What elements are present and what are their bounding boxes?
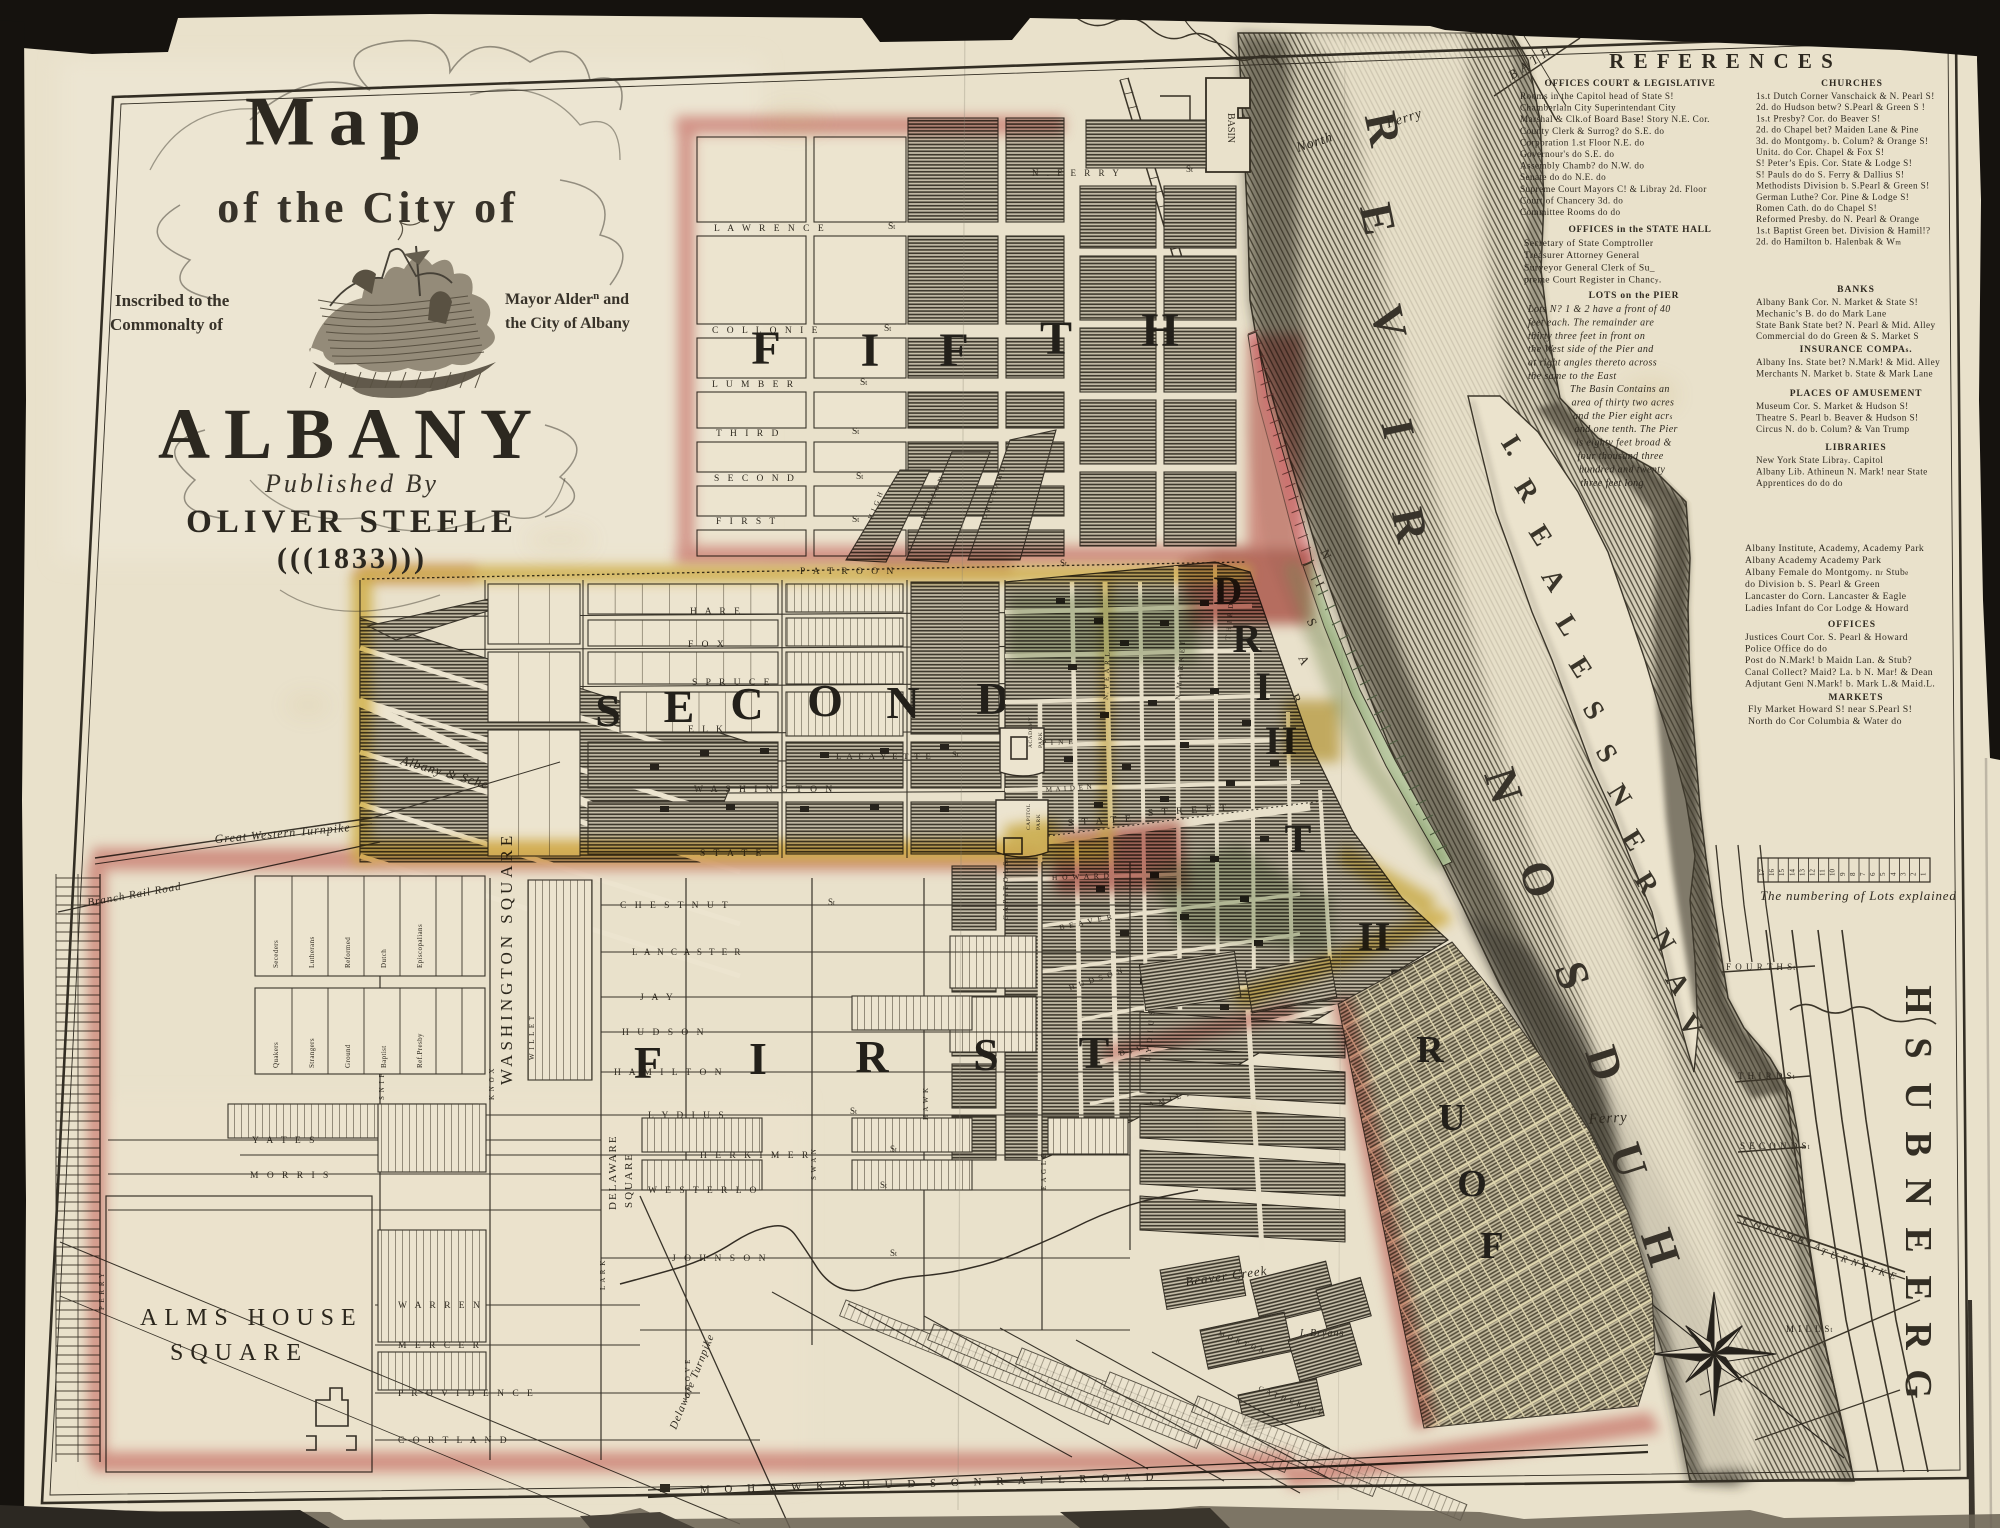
svg-text:Reformed: Reformed	[344, 937, 352, 968]
svg-text:Albany Ins. State bet? N.Mark: Albany Ins. State bet? N.Mark! & Mid. Al…	[1756, 357, 1940, 367]
svg-text:H A M I L T O N: H A M I L T O N	[614, 1068, 725, 1078]
svg-text:at right angles thereto across: at right angles thereto across	[1528, 358, 1657, 369]
svg-text:BASIN: BASIN	[1225, 113, 1236, 143]
svg-text:K N O X: K N O X	[488, 1068, 496, 1100]
svg-text:2: 2	[1910, 872, 1918, 876]
svg-text:11: 11	[1819, 869, 1827, 876]
svg-text:Albany Institute, Academy, Aca: Albany Institute, Academy, Academy Park	[1745, 543, 1924, 554]
svg-text:Romen Cath. do do: Romen Cath. do do Chapel S!	[1756, 203, 1877, 213]
svg-text:N: N	[1897, 1178, 1939, 1205]
svg-text:3: 3	[1899, 872, 1907, 876]
svg-text:L A W R E N C E: L A W R E N C E	[714, 224, 827, 234]
svg-text:St: St	[860, 378, 867, 388]
svg-text:E A G L E: E A G L E	[1040, 1152, 1048, 1190]
svg-text:ACADEMY: ACADEMY	[1028, 717, 1034, 748]
svg-text:Commonalty of: Commonalty of	[110, 315, 223, 334]
svg-text:area of thirty two acres: area of thirty two acres	[1572, 397, 1675, 408]
svg-text:thirty three feet in front on: thirty three feet in front on	[1528, 331, 1645, 342]
svg-text:Museum Cor. S. Market & Hudson: Museum Cor. S. Market & Hudson S!	[1756, 401, 1909, 411]
svg-text:the West side of the Pier and: the West side of the Pier and	[1528, 344, 1654, 355]
svg-text:E: E	[664, 681, 695, 732]
svg-text:Canal Collect? Maid? La. b N.: Canal Collect? Maid? La. b N. Mar! & Dea…	[1745, 667, 1933, 678]
svg-text:of the City of: of the City of	[217, 183, 519, 232]
svg-text:St: St	[1186, 164, 1193, 174]
svg-text:F O X: F O X	[688, 640, 727, 650]
svg-text:St: St	[828, 897, 835, 907]
svg-text:1s.t Presby? Cor.: 1s.t Presby? Cor. do Beaver S!	[1756, 113, 1881, 123]
svg-text:4: 4	[1889, 872, 1897, 876]
svg-text:MARKETS: MARKETS	[1828, 693, 1883, 703]
svg-text:2d. do Chapel bet? Maiden La: 2d. do Chapel bet? Maiden Lane & Pine	[1756, 125, 1919, 135]
svg-text:I: I	[1255, 664, 1271, 709]
svg-text:H A R E: H A R E	[690, 607, 743, 617]
svg-text:U: U	[1897, 1082, 1939, 1109]
svg-text:W I L L E T: W I L L E T	[528, 1015, 536, 1060]
svg-text:Surveyor General Clerk of Su_: Surveyor General Clerk of Su_	[1524, 262, 1655, 273]
svg-text:Commercial do do Green & S.: Commercial do do Green & S. Market S	[1756, 331, 1919, 341]
svg-text:M E R C E R: M E R C E R	[398, 1341, 482, 1351]
svg-text:OLIVER STEELE: OLIVER STEELE	[186, 504, 518, 540]
svg-text:S: S	[595, 685, 621, 736]
svg-text:12: 12	[1809, 869, 1817, 877]
svg-text:Ref.Presby: Ref.Presby	[416, 1033, 424, 1068]
svg-text:Marshal & Clk.of Board Base! S: Marshal & Clk.of Board Base! Story N.E. …	[1520, 114, 1710, 124]
svg-text:F: F	[939, 324, 968, 377]
svg-text:F O U R T H St: F O U R T H St	[1726, 962, 1796, 972]
svg-text:R: R	[1416, 1029, 1444, 1071]
svg-text:St: St	[852, 427, 859, 437]
svg-text:C: C	[730, 678, 763, 729]
svg-text:6: 6	[1869, 872, 1877, 876]
svg-text:N: N	[886, 677, 919, 728]
svg-text:Inscribed to the: Inscribed to the	[115, 291, 230, 310]
svg-text:O: O	[807, 675, 843, 726]
svg-text:St: St	[890, 1144, 897, 1154]
svg-text:The Basin Contains an: The Basin Contains an	[1570, 384, 1670, 395]
svg-text:PLACES OF AMUSEMENT: PLACES OF AMUSEMENT	[1790, 389, 1923, 399]
svg-text:SQUARE: SQUARE	[623, 1152, 635, 1208]
svg-text:Police Office do: Police Office do do	[1745, 644, 1827, 655]
svg-text:1s.t Baptist Green bet. Divisi: 1s.t Baptist Green bet. Division & Hamil…	[1756, 225, 1931, 235]
svg-text:Rooms in the Capitol head of S: Rooms in the Capitol head of State S!	[1520, 91, 1674, 101]
svg-text:T H I R D: T H I R D	[716, 429, 781, 439]
svg-text:L Y D I U S: L Y D I U S	[648, 1111, 727, 1121]
svg-text:Lancaster do Corn. Lancaster: Lancaster do Corn. Lancaster & Eagle	[1745, 591, 1906, 602]
svg-text:New York State Libray. Capitol: New York State Libray. Capitol	[1756, 455, 1883, 465]
svg-text:16: 16	[1768, 869, 1776, 877]
svg-text:Circus N. do b. Colum? &: Circus N. do b. Colum? & Van Trump	[1756, 424, 1910, 434]
svg-text:17: 17	[1758, 869, 1766, 877]
svg-text:Mechanic’s B. do do: Mechanic’s B. do do Mark Lane	[1756, 308, 1887, 318]
svg-text:St: St	[880, 1180, 887, 1190]
svg-text:1: 1	[1920, 872, 1928, 876]
svg-text:F I R S T: F I R S T	[716, 517, 778, 527]
svg-text:S E C O N D: S E C O N D	[714, 474, 797, 484]
svg-text:W A S H I N G T O N: W A S H I N G T O N	[694, 785, 835, 795]
svg-text:5: 5	[1879, 872, 1887, 876]
svg-text:R: R	[855, 1031, 889, 1082]
svg-text:J O H N S O N: J O H N S O N	[672, 1254, 769, 1264]
svg-text:the City of Albany: the City of Albany	[505, 315, 630, 332]
svg-text:P I N E: P I N E	[1042, 737, 1075, 747]
svg-text:Albany Academy Academy P: Albany Academy Academy Park	[1745, 555, 1881, 566]
svg-text:is eighty feet broad &: is eighty feet broad &	[1576, 438, 1672, 449]
svg-text:Albany Female do Montgomy. nr: Albany Female do Montgomy. nr Stube	[1745, 567, 1909, 578]
svg-text:Albany Lib. Athineun N. Mark!: Albany Lib. Athineun N. Mark! near State	[1756, 466, 1928, 476]
svg-text:INSURANCE COMPAs.: INSURANCE COMPAs.	[1800, 345, 1913, 355]
svg-text:2d. do Hudson betw? S.Pearl: 2d. do Hudson betw? S.Pearl & Green S !	[1756, 102, 1925, 112]
svg-text:C H E S T N U T: C H E S T N U T	[620, 901, 731, 911]
svg-text:L U M B E R: L U M B E R	[712, 380, 796, 390]
svg-text:H E R K I M E R: H E R K I M E R	[700, 1151, 811, 1161]
svg-text:W E S T E R L O: W E S T E R L O	[648, 1186, 759, 1196]
svg-text:hundred and twenty: hundred and twenty	[1579, 464, 1665, 475]
svg-text:Baptist: Baptist	[380, 1045, 388, 1068]
svg-text:State Bank State bet? N. Pearl: State Bank State bet? N. Pearl & Mid. Al…	[1756, 320, 1935, 330]
svg-text:F: F	[751, 322, 780, 375]
svg-text:The numbering of Lots explain: The numbering of Lots explained	[1760, 888, 1957, 903]
svg-text:feet each. The remainder are: feet each. The remainder are	[1528, 317, 1654, 328]
svg-text:BANKS: BANKS	[1837, 285, 1875, 295]
svg-text:2d. do Hamilton b. Halenb: 2d. do Hamilton b. Halenbak & Wm	[1756, 237, 1901, 247]
svg-text:S: S	[973, 1029, 999, 1080]
svg-text:St: St	[850, 1106, 857, 1116]
svg-text:Reformed Presby. do N. Pearl: Reformed Presby. do N. Pearl & Orange	[1756, 214, 1919, 224]
svg-text:Ground: Ground	[344, 1044, 352, 1068]
svg-text:four thousand three: four thousand three	[1578, 451, 1664, 462]
svg-text:preme Court Register in Chanc: preme Court Register in Chancy.	[1524, 275, 1662, 286]
svg-text:three feet long: three feet long	[1581, 478, 1644, 489]
svg-text:Post do N.Mark! b Maidn La: Post do N.Mark! b Maidn Lan. & Stub?	[1745, 655, 1912, 666]
svg-text:Mayor Aldern and: Mayor Aldern and	[505, 290, 629, 308]
svg-text:Y A T E S: Y A T E S	[252, 1136, 317, 1146]
svg-text:W A R R E N: W A R R E N	[398, 1301, 483, 1311]
svg-text:do Division b. S. Pearl & Gree: do Division b. S. Pearl & Green	[1745, 579, 1880, 590]
svg-text:St: St	[888, 222, 895, 232]
svg-text:Merchants N. Market b. State: Merchants N. Market b. State & Mark Lane	[1756, 368, 1933, 378]
svg-text:Senate do do: Senate do do N.E. do	[1520, 172, 1606, 182]
svg-text:B: B	[1897, 1131, 1939, 1156]
svg-text:S! Pauls do do S. Ferry &: S! Pauls do do S. Ferry & Dallius S!	[1756, 169, 1904, 179]
svg-text:J A Y: J A Y	[640, 993, 676, 1003]
svg-text:T: T	[1040, 312, 1072, 365]
svg-text:15: 15	[1778, 869, 1786, 877]
svg-text:Adjutant Genl N.Mark! b. Mark: Adjutant Genl N.Mark! b. Mark L.& Maid.L…	[1745, 678, 1935, 689]
svg-text:St: St	[856, 472, 863, 482]
svg-text:OFFICES in the STATE HALL: OFFICES in the STATE HALL	[1569, 225, 1712, 235]
svg-text:Lutherans: Lutherans	[308, 936, 316, 968]
svg-text:L A N C A S T E R: L A N C A S T E R	[632, 947, 743, 957]
svg-text:Governour's do: Governour's do S.E. do	[1520, 149, 1614, 159]
svg-text:DELAWARE: DELAWARE	[607, 1134, 619, 1210]
svg-text:H: H	[1897, 985, 1939, 1015]
svg-text:ALMS HOUSE: ALMS HOUSE	[140, 1305, 363, 1331]
svg-text:and the Pier eight acrs: and the Pier eight acrs	[1573, 411, 1673, 422]
svg-text:U: U	[1438, 1097, 1465, 1139]
svg-text:German Luthe? Cor. Pine & Lo: German Luthe? Cor. Pine & Lodge S!	[1756, 192, 1909, 202]
svg-text:3d. do Montgomy. b. Colum? &: 3d. do Montgomy. b. Colum? & Orange S!	[1756, 136, 1928, 146]
svg-text:Dutch: Dutch	[380, 949, 388, 968]
svg-text:St: St	[884, 324, 891, 334]
svg-text:St: St	[952, 749, 959, 759]
svg-text:Justices Court Cor. S. Pearl &: Justices Court Cor. S. Pearl & Howard	[1745, 632, 1908, 643]
svg-text:SQUARE: SQUARE	[170, 1340, 308, 1366]
svg-text:Episcopalians: Episcopalians	[416, 924, 424, 968]
svg-text:F: F	[1480, 1225, 1503, 1267]
svg-text:(((1833))): (((1833)))	[277, 542, 427, 575]
svg-text:M I L L St: M I L L St	[1786, 1324, 1833, 1334]
svg-text:Lots N? 1 & 2 have a front of: Lots N? 1 & 2 have a front of 40	[1527, 304, 1671, 315]
svg-text:C O R T L A N D: C O R T L A N D	[398, 1436, 510, 1446]
svg-text:14: 14	[1788, 869, 1796, 877]
svg-text:10: 10	[1829, 869, 1837, 877]
svg-text:N . F E R R Y: N . F E R R Y	[1032, 168, 1122, 178]
svg-text:13: 13	[1798, 869, 1806, 877]
svg-text:the same to the East: the same to the East	[1528, 371, 1617, 382]
svg-text:Assembly Chamb? do: Assembly Chamb? do N.W. do	[1520, 161, 1644, 171]
svg-text:T H I R D St: T H I R D St	[1738, 1071, 1796, 1081]
svg-text:Court of Chancery: Court of Chancery 3d. do	[1520, 195, 1623, 205]
svg-text:M O R R I S: M O R R I S	[250, 1171, 331, 1181]
svg-text:E: E	[1897, 1227, 1939, 1252]
svg-text:St: St	[890, 1248, 897, 1258]
svg-text:E: E	[1897, 1275, 1939, 1300]
svg-text:and one tenth. The Pier: and one tenth. The Pier	[1575, 424, 1678, 435]
svg-text:Strangers: Strangers	[308, 1038, 316, 1068]
svg-text:St: St	[852, 515, 859, 525]
svg-text:OFFICES COURT & LEGISLATIVE: OFFICES COURT & LEGISLATIVE	[1545, 79, 1716, 89]
svg-text:ALBANY: ALBANY	[158, 394, 546, 474]
svg-text:S E C O N D St: S E C O N D St	[1740, 1141, 1810, 1151]
svg-text:L.Bryans: L.Bryans	[1299, 1328, 1344, 1339]
svg-text:LOTS on the PIER: LOTS on the PIER	[1589, 291, 1680, 301]
svg-text:County Clerk & Surrog? do: County Clerk & Surrog? do S.E. do	[1520, 126, 1664, 136]
svg-text:L A R K: L A R K	[599, 1260, 607, 1290]
svg-text:North do Cor Columbia & Wat: North do Cor Columbia & Water do	[1748, 716, 1902, 727]
svg-text:S: S	[1897, 1037, 1939, 1058]
svg-text:I: I	[749, 1033, 767, 1084]
svg-text:8: 8	[1849, 872, 1857, 876]
svg-text:9: 9	[1839, 872, 1847, 876]
svg-text:Apprentices do: Apprentices do do do	[1756, 478, 1843, 488]
svg-text:Chamberlain City Superintendan: Chamberlain City Superintendant City	[1520, 103, 1676, 113]
svg-text:Unitd. do Cor. Chapel &: Unitd. do Cor. Chapel & Fox S!	[1756, 147, 1884, 157]
svg-text:1s.t Dutch Corner Vanschaick &: 1s.t Dutch Corner Vanschaick & N. Pearl …	[1756, 91, 1935, 101]
svg-text:Treasurer Attorney General: Treasurer Attorney General	[1524, 250, 1640, 261]
svg-text:Published By: Published By	[264, 469, 439, 498]
svg-text:Supreme Court Mayors C! & Libr: Supreme Court Mayors C! & Libray 2d. Flo…	[1520, 184, 1707, 194]
svg-text:Corporation 1.st Floor: Corporation 1.st Floor N.E. do	[1520, 137, 1645, 147]
svg-text:S W A N: S W A N	[810, 1148, 818, 1180]
svg-text:R: R	[1897, 1322, 1939, 1350]
svg-text:Committee Rooms: Committee Rooms do do	[1520, 207, 1621, 217]
svg-text:Quakers: Quakers	[272, 1042, 280, 1068]
svg-text:Fly Market Howard S! near S.Pe: Fly Market Howard S! near S.Pearl S!	[1748, 704, 1912, 715]
svg-text:LIBRARIES: LIBRARIES	[1825, 443, 1886, 453]
svg-text:T: T	[1285, 816, 1312, 861]
svg-text:O: O	[1457, 1163, 1487, 1205]
svg-text:I: I	[861, 324, 880, 377]
svg-text:R E F E R E N C E S: R E F E R E N C E S	[1609, 49, 1835, 73]
svg-text:Ladies Infant do Cor Lodge & H: Ladies Infant do Cor Lodge & Howard	[1745, 603, 1909, 614]
svg-text:Albany Bank Cor. N. Market & S: Albany Bank Cor. N. Market & State S!	[1756, 297, 1918, 307]
svg-text:H A W K: H A W K	[922, 1087, 930, 1120]
svg-text:F: F	[634, 1037, 662, 1088]
svg-text:H: H	[1141, 304, 1178, 357]
svg-text:OFFICES: OFFICES	[1828, 620, 1876, 630]
svg-text:7: 7	[1859, 872, 1867, 876]
svg-text:Secretary of State Comptrolle: Secretary of State Comptroller	[1524, 238, 1654, 249]
svg-text:Map: Map	[245, 82, 435, 160]
svg-text:S! Peter’s Epis. Cor. State &: S! Peter’s Epis. Cor. State & Lodge S!	[1756, 158, 1912, 168]
svg-text:Theatre S. Pearl b. Beaver & H: Theatre S. Pearl b. Beaver & Hudson S!	[1756, 412, 1918, 422]
svg-text:Methodists Division b. S.Pearl: Methodists Division b. S.Pearl & Green S…	[1756, 181, 1930, 191]
svg-text:G: G	[1897, 1369, 1939, 1399]
svg-text:CHURCHES: CHURCHES	[1821, 79, 1883, 89]
svg-text:Seceders: Seceders	[272, 940, 280, 968]
